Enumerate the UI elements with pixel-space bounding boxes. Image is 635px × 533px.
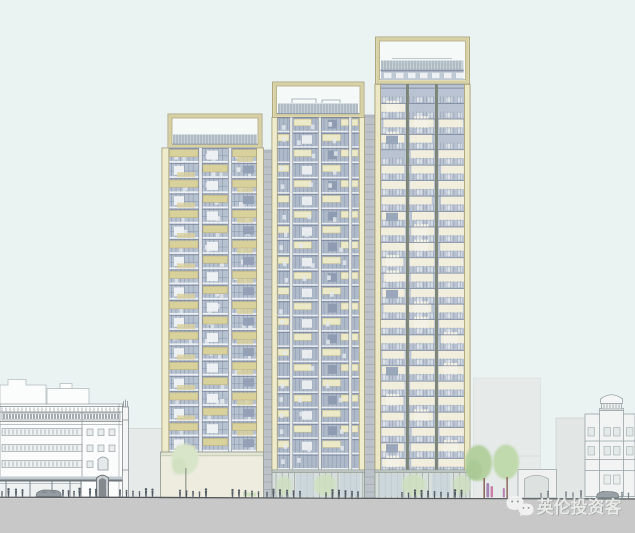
- svg-text:英伦投资客: 英伦投资客: [537, 497, 622, 517]
